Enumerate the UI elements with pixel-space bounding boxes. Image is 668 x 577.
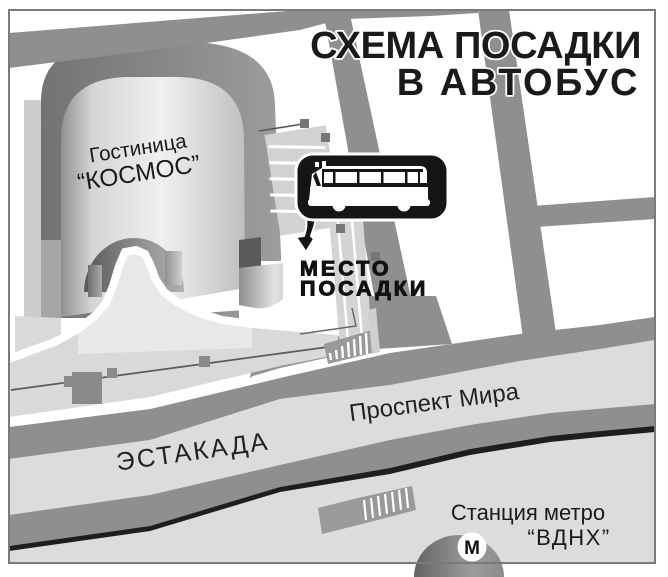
svg-text:“ВДНХ”: “ВДНХ” (527, 525, 610, 550)
svg-text:В АВТОБУС: В АВТОБУС (397, 62, 640, 104)
svg-text:СХЕМА ПОСАДКИ: СХЕМА ПОСАДКИ (310, 25, 641, 67)
svg-text:М: М (464, 538, 480, 559)
svg-text:ПОСАДКИ: ПОСАДКИ (300, 277, 428, 301)
svg-text:Станция метро: Станция метро (451, 500, 605, 525)
